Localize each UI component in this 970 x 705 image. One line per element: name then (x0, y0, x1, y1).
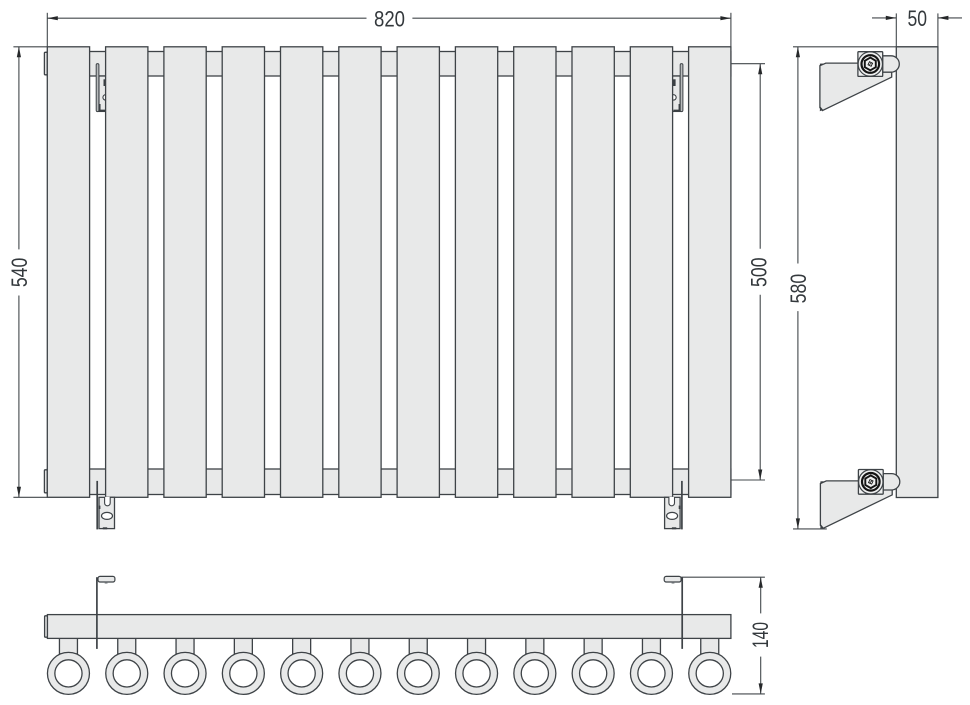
svg-text:580: 580 (786, 274, 811, 304)
svg-text:500: 500 (747, 257, 772, 287)
svg-text:50: 50 (908, 6, 928, 31)
svg-text:820: 820 (374, 6, 405, 31)
svg-text:540: 540 (7, 258, 32, 288)
svg-text:140: 140 (748, 622, 773, 648)
